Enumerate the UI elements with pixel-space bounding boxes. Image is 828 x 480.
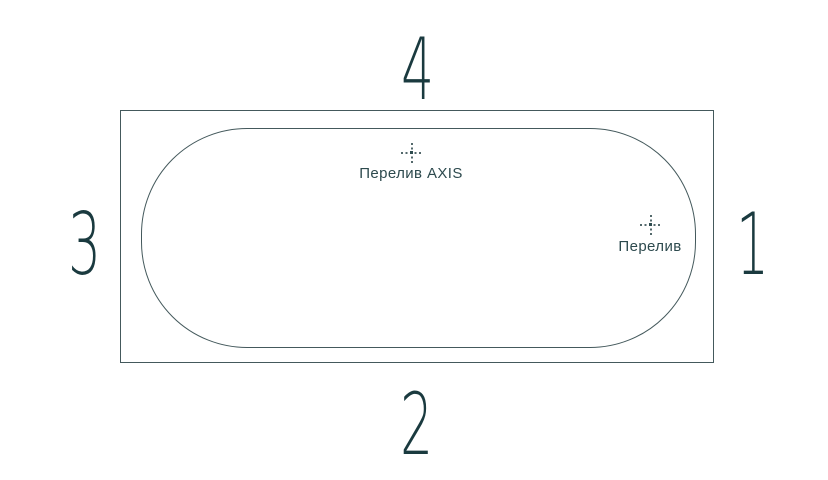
overflow-axis-marker[interactable]: Перелив AXIS — [331, 143, 491, 182]
overflow-label: Перелив — [618, 238, 681, 255]
side-number-bottom: 2 — [389, 381, 443, 469]
overflow-axis-label: Перелив AXIS — [359, 165, 463, 182]
bathtub-diagram: 4 2 3 1 Перелив AXIS Перелив — [0, 0, 828, 480]
crosshair-icon — [401, 143, 422, 163]
side-number-top: 4 — [390, 26, 444, 114]
side-number-left: 3 — [57, 201, 111, 289]
crosshair-icon — [640, 215, 661, 235]
side-number-right: 1 — [725, 201, 779, 289]
overflow-marker[interactable]: Перелив — [570, 215, 730, 255]
